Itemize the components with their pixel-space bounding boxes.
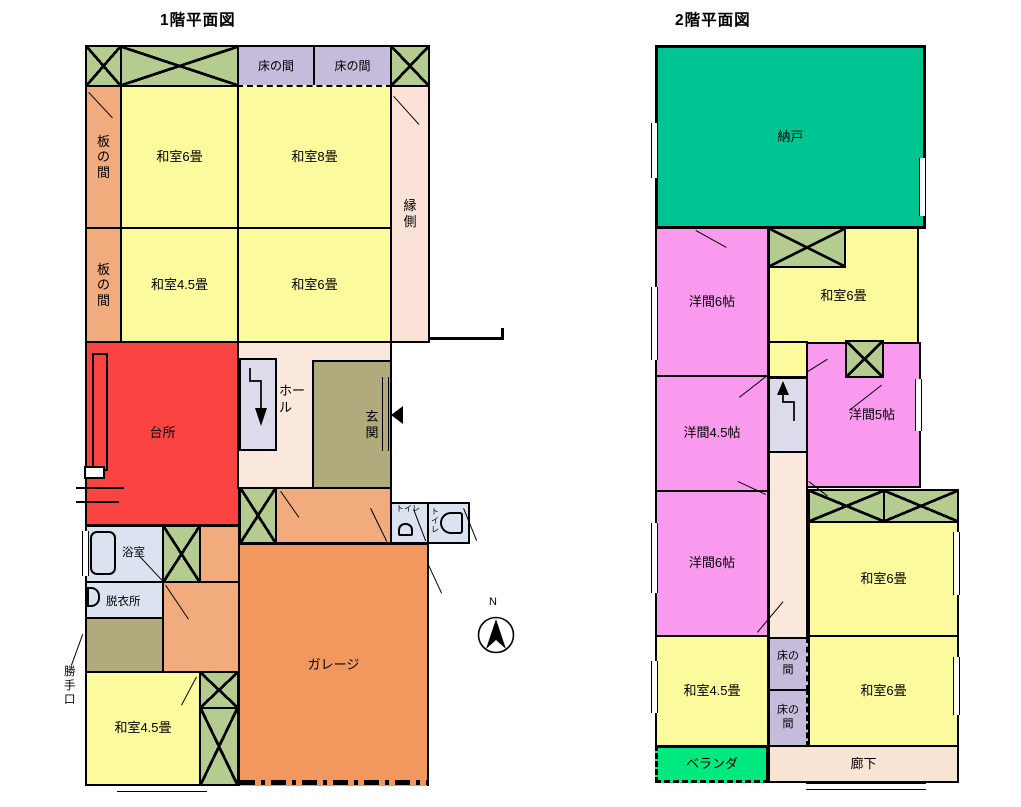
toilet-bowl-icon [398, 523, 413, 536]
entrance-arrow-icon [391, 406, 403, 424]
closet-xbox [199, 707, 239, 786]
corridor [199, 525, 240, 583]
closet-xbox [768, 227, 846, 268]
storage-block [85, 617, 164, 673]
room-label: 和室6畳 [820, 288, 866, 304]
closet-xbox [162, 525, 201, 583]
room-label: ガレージ [308, 657, 360, 673]
room-label: ホール [279, 383, 313, 417]
window-mark [117, 785, 207, 792]
room-label: 洋間6帖 [689, 555, 735, 571]
window-mark [651, 661, 658, 713]
room-label: 和室6畳 [860, 683, 906, 699]
room-veranda: ベランダ [655, 745, 769, 783]
floorplan-canvas: 1階平面図 床の間 床の間 板の間 和室6畳 和室8畳 縁側 板の間 和室4.5… [0, 0, 1021, 807]
closet-xbox [883, 489, 959, 523]
floor2-title: 2階平面図 [675, 8, 751, 30]
room-label: 洋間5帖 [849, 407, 895, 423]
garage-open-dash-line [240, 780, 427, 785]
stairs-up [768, 377, 808, 453]
room-label: 和室6畳 [291, 277, 337, 293]
stairs-down [239, 358, 277, 451]
bathtub-icon [90, 531, 116, 575]
room-washitsu6-a: 和室6畳 [120, 85, 239, 229]
room-washitsu45-b: 和室4.5畳 [85, 671, 201, 786]
toilet-bowl-icon [440, 512, 463, 534]
entrance-door-mark [382, 377, 389, 451]
compass-north-label: N [489, 596, 497, 608]
room-label: ベランダ [686, 756, 738, 772]
room-tokonoma-b: 床の間 [313, 45, 392, 87]
room-label: 板の間 [96, 262, 111, 309]
window-mark [915, 379, 922, 431]
room-tokonoma-f2b: 床の間 [768, 689, 809, 747]
kitchen-counter [92, 353, 108, 471]
room-yoma6-a: 洋間6帖 [655, 227, 769, 377]
room-nando: 納戸 [655, 45, 926, 229]
room-washitsu8: 和室8畳 [237, 85, 392, 229]
room-washitsu45-f2: 和室4.5畳 [655, 635, 769, 747]
window-mark [651, 287, 658, 360]
closet-xbox [85, 45, 122, 87]
closet-xbox [120, 45, 239, 87]
window-mark [953, 532, 960, 595]
closet-xbox [239, 487, 277, 544]
room-tokonoma-a: 床の間 [237, 45, 315, 87]
room-garage: ガレージ [238, 543, 429, 786]
window-mark [953, 657, 960, 715]
kitchen-line [76, 487, 124, 489]
floor1-title: 1階平面図 [160, 8, 236, 30]
stairs-down-arrow-icon [241, 360, 275, 449]
room-label: 廊下 [850, 756, 876, 772]
room-label: 洋間6帖 [689, 294, 735, 310]
corridor [162, 581, 240, 673]
room-label: 和室4.5畳 [114, 720, 171, 736]
room-label: 洋間4.5帖 [683, 425, 740, 441]
closet-xbox [808, 489, 885, 523]
room-label: 和室6畳 [156, 149, 202, 165]
stairs-up-arrow-icon [770, 379, 806, 451]
room-label: 和室4.5畳 [151, 277, 208, 293]
room-label: トイレ [431, 508, 440, 534]
door-swing-line [71, 634, 83, 665]
room-washitsu45-a: 和室4.5畳 [120, 227, 239, 343]
room-washitsu6-f2c: 和室6畳 [808, 635, 959, 747]
window-mark [651, 123, 658, 178]
room-yoma6-b: 洋間6帖 [655, 490, 769, 637]
room-genkan: 玄関 [312, 360, 392, 489]
room-label: 床の間 [258, 59, 294, 74]
window-mark [82, 531, 89, 576]
room-label-katteguchi: 勝手口 [64, 666, 78, 707]
boundary-wall-line [428, 337, 504, 340]
room-label: 玄関 [365, 409, 380, 440]
room-daidokoro: 台所 [85, 341, 240, 526]
room-label: 床の間 [334, 59, 370, 74]
window-mark [651, 523, 658, 593]
room-label: 脱衣所 [106, 593, 141, 609]
room-washitsu6-f2a-tab [768, 341, 808, 378]
room-washitsu6-b: 和室6畳 [237, 227, 392, 343]
room-rouka: 廊下 [768, 745, 959, 783]
boundary-wall-tick [501, 328, 504, 339]
closet-xbox [390, 45, 430, 87]
room-label: 床の間 [775, 650, 801, 678]
room-itanoma-b: 板の間 [85, 227, 122, 343]
room-engawa: 縁側 [390, 85, 430, 343]
room-washitsu6-f2b: 和室6畳 [808, 521, 959, 637]
closet-xbox [845, 340, 884, 378]
room-label: 和室8畳 [291, 149, 337, 165]
room-yoma45: 洋間4.5帖 [655, 375, 769, 492]
window-mark [919, 158, 926, 216]
room-label: 和室4.5畳 [683, 683, 740, 699]
room-label: 台所 [149, 425, 175, 441]
room-label: 床の間 [775, 704, 801, 732]
room-label: 納戸 [777, 129, 803, 145]
window-mark [806, 783, 926, 790]
room-tokonoma-f2a: 床の間 [768, 637, 809, 691]
room-label: 板の間 [96, 134, 111, 181]
room-label: トイレ [396, 505, 420, 514]
compass-icon [477, 616, 515, 654]
door-swing-line [428, 565, 442, 594]
kitchen-sink [84, 466, 105, 479]
room-label: 縁側 [403, 198, 418, 229]
kitchen-line [76, 501, 119, 503]
closet-xbox [199, 671, 239, 709]
room-label: 和室6畳 [860, 571, 906, 587]
